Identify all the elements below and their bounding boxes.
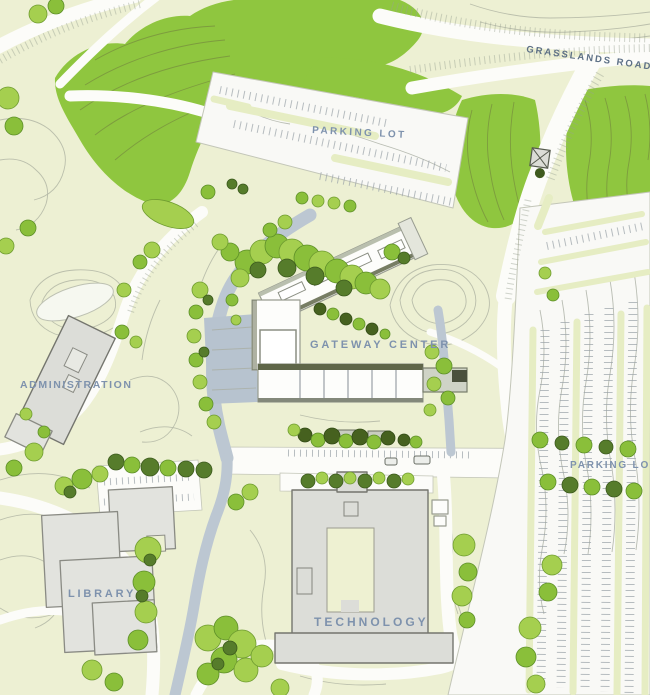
label-administration: ADMINISTRATION [20,379,133,391]
label-technology: TECHNOLOGY [314,615,429,629]
site-plan-map: GRASSLANDS ROAD PARKING LOT GATEWAY CENT… [0,0,650,695]
technology-courtyard [327,528,374,612]
technology-building [275,472,453,663]
label-library: LIBRARY [68,588,136,600]
car-icon [385,458,397,465]
label-gateway-center: GATEWAY CENTER [310,339,451,351]
gateway-courtyard [260,330,296,366]
site-plan: GRASSLANDS ROAD PARKING LOT GATEWAY CENT… [0,0,650,695]
van-icon [414,456,430,464]
label-parking-lot-east: PARKING LOT [570,460,650,471]
